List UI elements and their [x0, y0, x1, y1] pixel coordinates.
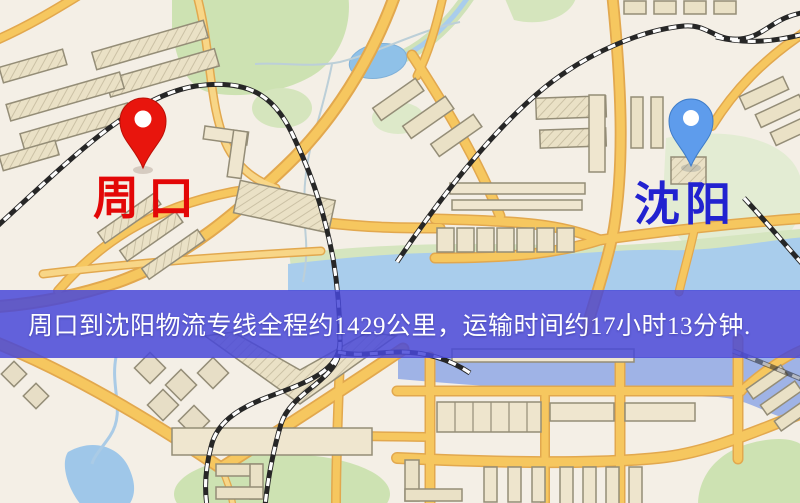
map-canvas	[0, 0, 800, 503]
origin-pin-icon[interactable]	[120, 98, 166, 174]
route-info-banner: 周口到沈阳物流专线全程约1429公里，运输时间约17小时13分钟.	[0, 290, 800, 358]
destination-city-label: 沈阳	[634, 182, 736, 228]
route-info-text: 周口到沈阳物流专线全程约1429公里，运输时间约17小时13分钟.	[0, 306, 751, 342]
origin-city-label: 周口	[93, 176, 203, 222]
map-view[interactable]: 周口 沈阳 周口到沈阳物流专线全程约1429公里，运输时间约17小时13分钟.	[0, 0, 800, 503]
